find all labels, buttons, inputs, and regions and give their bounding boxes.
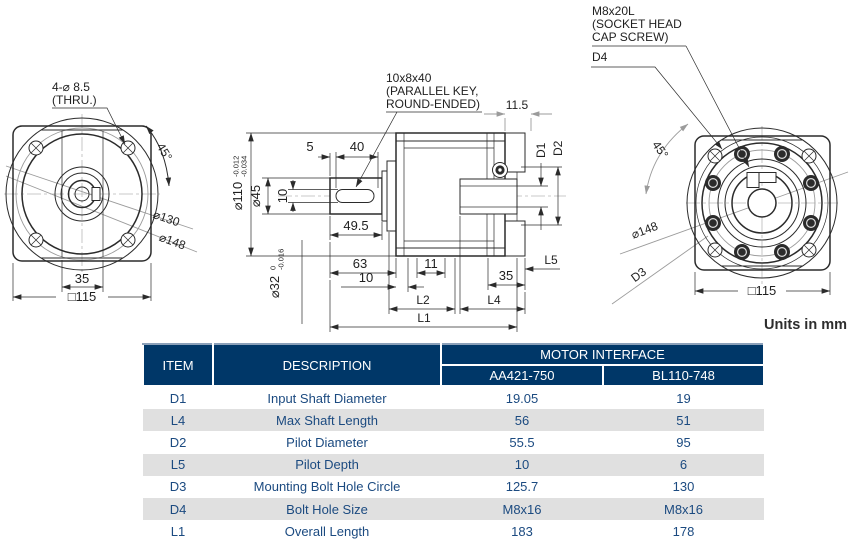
cell-col1: 183 (441, 520, 603, 542)
cell-col2: M8x16 (603, 498, 764, 520)
cell-description: Bolt Hole Size (213, 498, 441, 520)
cell-col2: 51 (603, 409, 764, 431)
header-col-bl110-748: BL110-748 (603, 365, 764, 386)
cell-col1: M8x16 (441, 498, 603, 520)
rear-d4-label: D4 (592, 50, 608, 64)
front-bolt-callout-line1: 4-⌀ 8.5 (52, 80, 90, 94)
front-dim-35: 35 (75, 271, 89, 286)
rear-dia148-label: ⌀148 (629, 219, 660, 242)
cell-item: L1 (143, 520, 213, 542)
front-dia148-label: ⌀148 (157, 230, 188, 253)
gearbox-drawing-page: 45° 4-⌀ 8.5 (THRU.) ⌀130 ⌀148 35 □115 (0, 0, 850, 559)
label-d1: D1 (534, 142, 548, 158)
input-coupling-bore (460, 179, 517, 214)
table-header-row-1: ITEM DESCRIPTION MOTOR INTERFACE (143, 344, 764, 365)
dia32-tol-lower: -0.016 (277, 249, 286, 270)
front-view-drawing: 45° 4-⌀ 8.5 (THRU.) ⌀130 ⌀148 35 □115 (4, 80, 197, 304)
dim-dia110: ⌀110 -0.012 -0.034 (230, 156, 249, 211)
cell-item: D3 (143, 476, 213, 498)
dim-10-key: 10 (275, 189, 290, 203)
rear-dim-square115: □115 (748, 283, 777, 298)
cell-item: L5 (143, 454, 213, 476)
cell-col1: 10 (441, 454, 603, 476)
table-row: D2 Pilot Diameter 55.5 95 (143, 431, 764, 453)
screw-callout-line3: CAP SCREW) (592, 30, 668, 44)
label-l1: L1 (417, 311, 431, 325)
rear-45deg-arc (646, 124, 688, 194)
front-keyway (92, 188, 100, 201)
cell-item: D1 (143, 386, 213, 409)
rear-d3-label: D3 (628, 264, 649, 285)
header-col-aa421-750: AA421-750 (441, 365, 603, 386)
rear-angle-label: 45° (649, 138, 671, 161)
header-item: ITEM (143, 344, 213, 386)
cell-col1: 56 (441, 409, 603, 431)
dim-40: 40 (350, 139, 364, 154)
front-dim-square115: □115 (68, 289, 97, 304)
cell-col2: 178 (603, 520, 764, 542)
spec-table-container: ITEM DESCRIPTION MOTOR INTERFACE AA421-7… (142, 343, 763, 542)
cell-item: D2 (143, 431, 213, 453)
technical-drawing: 45° 4-⌀ 8.5 (THRU.) ⌀130 ⌀148 35 □115 (0, 0, 850, 340)
table-row: L4 Max Shaft Length 56 51 (143, 409, 764, 431)
rear-bore (748, 189, 776, 217)
cell-col2: 130 (603, 476, 764, 498)
dim-11-5: 11.5 (506, 98, 529, 112)
rear-keyway (747, 173, 759, 188)
cell-description: Input Shaft Diameter (213, 386, 441, 409)
cell-item: L4 (143, 409, 213, 431)
parallel-key-slot (336, 190, 374, 203)
rear-view-drawing: 45° ⌀148 D3 □115 M8x20L (SOCKET HEAD CAP… (591, 4, 848, 304)
cell-col2: 6 (603, 454, 764, 476)
label-l4: L4 (487, 293, 501, 307)
cell-description: Max Shaft Length (213, 409, 441, 431)
dim-63: 63 (353, 256, 367, 271)
screw-callout-line2: (SOCKET HEAD (592, 17, 682, 31)
front-angle-label: 45° (154, 140, 176, 163)
table-row: D1 Input Shaft Diameter 19.05 19 (143, 386, 764, 409)
key-callout-line3: ROUND-ENDED) (386, 97, 480, 111)
table-row: L1 Overall Length 183 178 (143, 520, 764, 542)
svg-text:⌀32: ⌀32 (267, 276, 282, 298)
dim-35-section: 35 (499, 268, 513, 283)
dim-10: 10 (359, 270, 373, 285)
header-description: DESCRIPTION (213, 344, 441, 386)
key-callout-line1: 10x8x40 (386, 71, 432, 85)
cell-col1: 55.5 (441, 431, 603, 453)
table-row: D3 Mounting Bolt Hole Circle 125.7 130 (143, 476, 764, 498)
label-l5: L5 (544, 253, 558, 267)
section-view-drawing: 10x8x40 (PARALLEL KEY, ROUND-ENDED) 5 40… (230, 71, 566, 332)
cell-description: Pilot Depth (213, 454, 441, 476)
header-motor-interface: MOTOR INTERFACE (441, 344, 764, 365)
dim-5: 5 (306, 139, 313, 154)
spec-table: ITEM DESCRIPTION MOTOR INTERFACE AA421-7… (142, 343, 765, 542)
dim-11: 11 (424, 256, 438, 271)
screw-callout-line1: M8x20L (592, 4, 635, 18)
svg-text:⌀110: ⌀110 (230, 182, 245, 211)
cell-col2: 19 (603, 386, 764, 409)
cell-col2: 95 (603, 431, 764, 453)
label-d2: D2 (551, 140, 565, 156)
cell-description: Overall Length (213, 520, 441, 542)
cell-item: D4 (143, 498, 213, 520)
dim-dia45: ⌀45 (248, 185, 263, 207)
cell-col1: 19.05 (441, 386, 603, 409)
cell-description: Pilot Diameter (213, 431, 441, 453)
units-note: Units in mm (764, 317, 847, 333)
front-dia130-label: ⌀130 (151, 207, 182, 229)
label-l2: L2 (416, 293, 430, 307)
key-callout-line2: (PARALLEL KEY, (386, 84, 479, 98)
dim-49-5: 49.5 (343, 218, 368, 233)
table-row: L5 Pilot Depth 10 6 (143, 454, 764, 476)
front-bolt-callout-line2: (THRU.) (52, 93, 97, 107)
section-socket-screw (493, 163, 508, 178)
dia110-tol-lower: -0.034 (240, 156, 249, 177)
table-row: D4 Bolt Hole Size M8x16 M8x16 (143, 498, 764, 520)
cell-col1: 125.7 (441, 476, 603, 498)
cell-description: Mounting Bolt Hole Circle (213, 476, 441, 498)
